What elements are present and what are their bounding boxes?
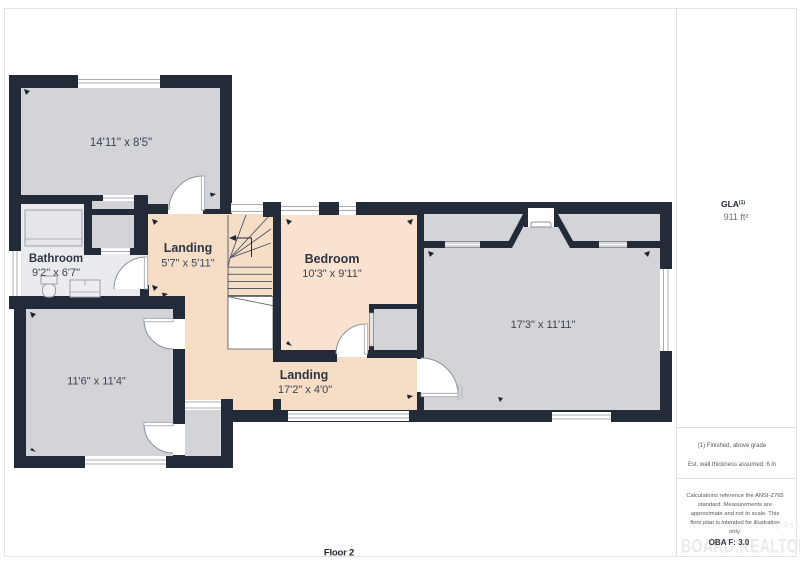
svg-text:Landing: Landing — [164, 241, 213, 255]
svg-text:floor plan is intended for ill: floor plan is intended for illustration — [690, 520, 780, 526]
svg-text:10'3" x 9'11": 10'3" x 9'11" — [302, 268, 362, 280]
svg-text:5'7" x 5'11": 5'7" x 5'11" — [161, 258, 214, 270]
svg-text:(1) Finished, above grade: (1) Finished, above grade — [698, 443, 767, 449]
svg-text:approximate and not to scale.: approximate and not to scale. This — [691, 511, 780, 517]
svg-text:standard. Measurements are: standard. Measurements are — [698, 502, 772, 508]
svg-text:Landing: Landing — [280, 368, 329, 382]
svg-text:Bedroom: Bedroom — [305, 252, 360, 266]
svg-text:11'6" x 11'4": 11'6" x 11'4" — [67, 376, 126, 388]
svg-text:14'11" x 8'5": 14'11" x 8'5" — [90, 137, 152, 149]
svg-text:17'3" x 11'11": 17'3" x 11'11" — [511, 319, 576, 331]
svg-text:Est. wall thickness assumed: 6: Est. wall thickness assumed: 6 in — [688, 462, 776, 468]
svg-text:911 ft²: 911 ft² — [724, 212, 749, 222]
svg-text:only.: only. — [729, 529, 741, 535]
svg-text:9'2" x 6'7": 9'2" x 6'7" — [32, 267, 80, 279]
svg-text:Floor 2: Floor 2 — [324, 548, 354, 559]
svg-text:OBA F: 3.0: OBA F: 3.0 — [709, 538, 750, 547]
svg-text:17'2" x 4'0": 17'2" x 4'0" — [278, 384, 332, 396]
svg-text:Bathroom: Bathroom — [29, 253, 83, 265]
svg-text:Calculations reference the ANS: Calculations reference the ANSI-Z765 — [686, 493, 783, 499]
